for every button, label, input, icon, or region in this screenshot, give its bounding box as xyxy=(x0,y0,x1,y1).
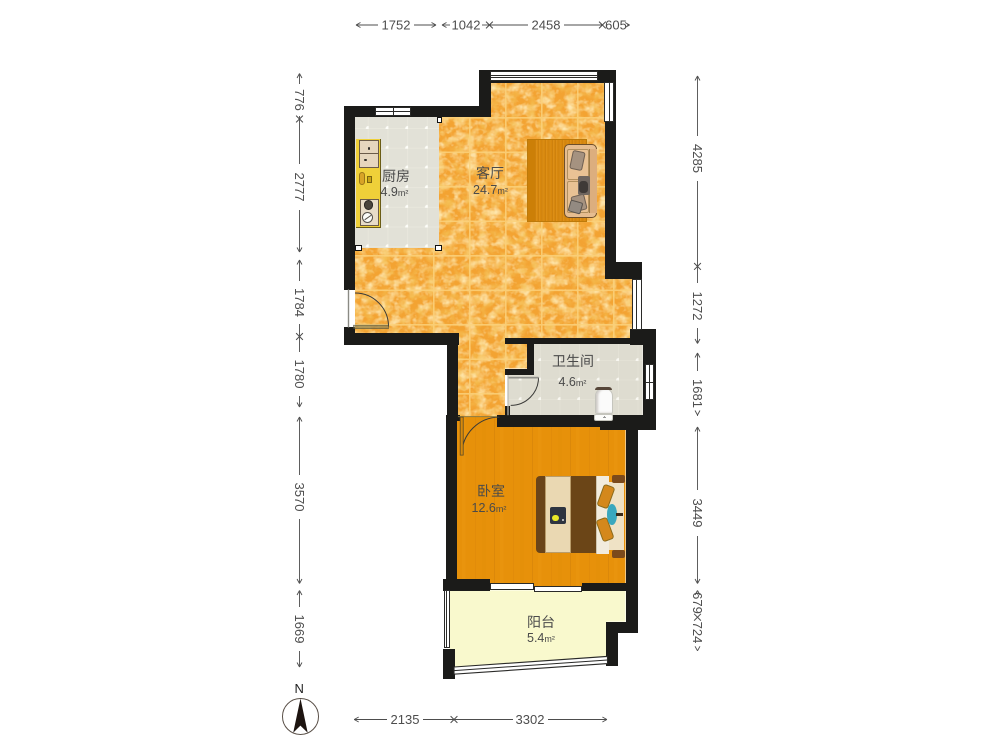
svg-text:2135: 2135 xyxy=(391,712,420,727)
svg-text:3570: 3570 xyxy=(292,483,307,512)
svg-text:776: 776 xyxy=(292,89,307,111)
svg-text:1669: 1669 xyxy=(292,615,307,644)
svg-text:3302: 3302 xyxy=(516,712,545,727)
svg-text:2458: 2458 xyxy=(532,18,561,33)
svg-text:1784: 1784 xyxy=(292,288,307,317)
svg-text:1752: 1752 xyxy=(382,18,411,33)
svg-text:679: 679 xyxy=(690,592,705,614)
svg-text:1681: 1681 xyxy=(690,379,705,408)
svg-text:1042: 1042 xyxy=(452,18,481,33)
svg-text:2777: 2777 xyxy=(292,173,307,202)
svg-text:605: 605 xyxy=(605,18,627,33)
svg-text:4285: 4285 xyxy=(690,144,705,173)
svg-text:1272: 1272 xyxy=(690,292,705,321)
svg-text:3449: 3449 xyxy=(690,499,705,528)
svg-text:724: 724 xyxy=(690,622,705,644)
svg-text:1780: 1780 xyxy=(292,360,307,389)
